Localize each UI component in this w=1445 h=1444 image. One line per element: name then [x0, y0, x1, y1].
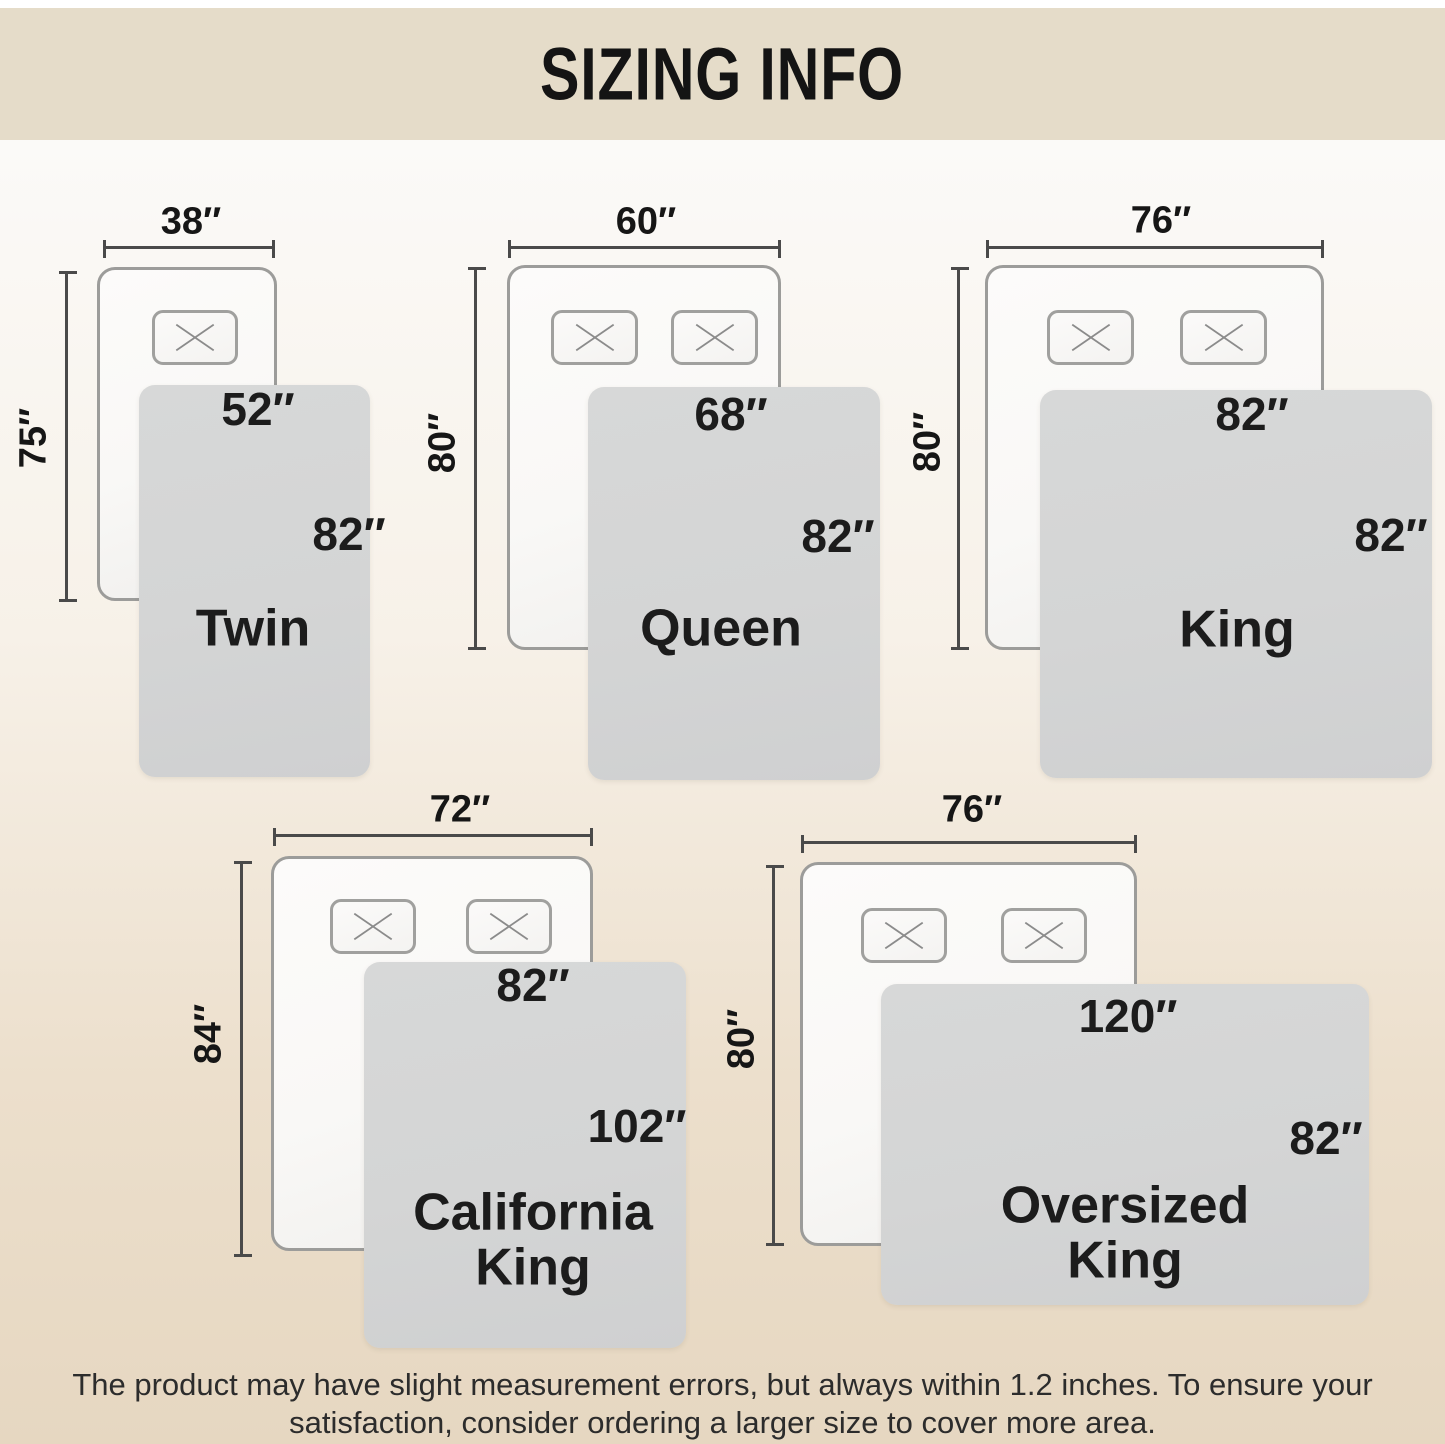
length-dimension-label: 80″ [721, 1009, 764, 1069]
blanket [1040, 390, 1432, 778]
size-name: King [1179, 603, 1295, 658]
blanket-length-label: 82″ [1354, 508, 1427, 562]
blanket-width-label: 120″ [1079, 989, 1178, 1043]
blanket-length-label: 82″ [1289, 1111, 1362, 1165]
width-dimension-label: 38″ [161, 201, 221, 244]
width-dimension-line [273, 834, 593, 837]
size-name-line1: Twin [196, 602, 311, 657]
size-name-line1: California [413, 1185, 653, 1240]
blanket-width-label: 82″ [496, 958, 569, 1012]
size-name: Queen [640, 602, 802, 657]
pillow-x-icon [1183, 313, 1264, 362]
size-name: Oversized King [1001, 1178, 1250, 1287]
blanket-width-label: 68″ [694, 387, 767, 441]
size-name-line1: Oversized [1001, 1178, 1250, 1233]
sizing-infographic: SIZING INFO 38″ 75″ 52″ 82″ Twin 60″ 80″ [0, 0, 1445, 1444]
pillow [671, 310, 758, 365]
width-dimension-line [801, 841, 1137, 844]
pillow-x-icon [155, 313, 235, 362]
pillow [152, 310, 238, 365]
pillow-x-icon [554, 313, 635, 362]
size-name: Twin [196, 602, 311, 657]
length-dimension-label: 80″ [907, 412, 950, 472]
width-dimension-line [986, 246, 1324, 249]
pillow [1180, 310, 1267, 365]
footer-note-line2: satisfaction, consider ordering a larger… [0, 1404, 1445, 1442]
size-name-line1: King [1179, 603, 1295, 658]
pillow-x-icon [1004, 911, 1084, 960]
blanket-length-label: 82″ [801, 509, 874, 563]
length-dimension-label: 84″ [188, 1004, 231, 1064]
pillow-x-icon [1050, 313, 1131, 362]
pillow [466, 899, 552, 954]
length-dimension-line [957, 267, 960, 650]
width-dimension-label: 60″ [616, 201, 676, 244]
length-dimension-line [474, 267, 477, 650]
width-dimension-label: 72″ [430, 789, 490, 832]
pillow [1001, 908, 1087, 963]
pillow [861, 908, 947, 963]
pillow [1047, 310, 1134, 365]
length-dimension-line [240, 861, 243, 1257]
pillow-x-icon [864, 911, 944, 960]
pillow [551, 310, 638, 365]
page-title: SIZING INFO [540, 32, 904, 117]
size-name-line2: King [1001, 1233, 1250, 1288]
footer-note: The product may have slight measurement … [0, 1366, 1445, 1442]
length-dimension-label: 75″ [13, 408, 56, 468]
size-name-line1: Queen [640, 602, 802, 657]
size-name-line2: King [413, 1240, 653, 1295]
width-dimension-line [103, 246, 275, 249]
pillow [330, 899, 416, 954]
pillow-x-icon [469, 902, 549, 951]
blanket [588, 387, 880, 780]
pillow-x-icon [333, 902, 413, 951]
width-dimension-label: 76″ [1131, 200, 1191, 243]
blanket-width-label: 52″ [221, 382, 294, 436]
footer-note-line1: The product may have slight measurement … [0, 1366, 1445, 1404]
blanket-length-label: 82″ [312, 507, 385, 561]
size-name: California King [413, 1185, 653, 1294]
width-dimension-label: 76″ [942, 789, 1002, 832]
pillow-x-icon [674, 313, 755, 362]
length-dimension-label: 80″ [422, 413, 465, 473]
length-dimension-line [65, 271, 68, 602]
length-dimension-line [772, 865, 775, 1246]
blanket-width-label: 82″ [1215, 387, 1288, 441]
width-dimension-line [508, 246, 781, 249]
blanket [139, 385, 370, 777]
blanket-length-label: 102″ [588, 1099, 687, 1153]
